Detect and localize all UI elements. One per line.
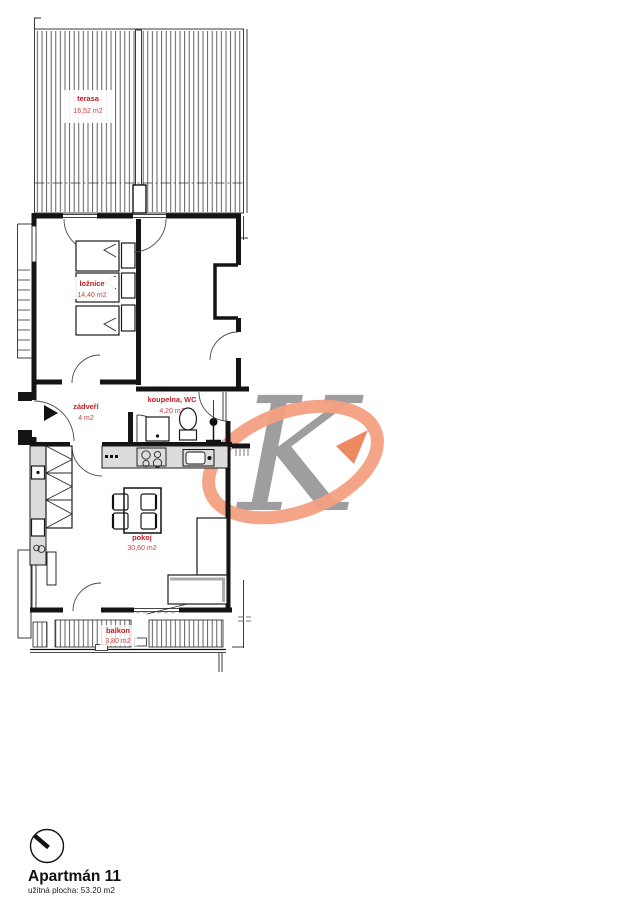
corridor-wall-stub	[18, 392, 32, 401]
room-area-loznice: 14,40 m2	[77, 292, 106, 299]
room-label-terasa: terasa	[77, 94, 100, 103]
chair	[141, 494, 156, 510]
door-arc-hall-to-room	[72, 446, 102, 476]
floorplan-page: K terasa 16,52 m2	[0, 0, 642, 905]
toilet-bowl	[180, 408, 197, 430]
radiator	[47, 552, 56, 585]
room-label-pokoj: pokoj	[132, 533, 152, 542]
room-area-zadveri: 4 m2	[78, 415, 94, 422]
room-area-pokoj: 30,60 m2	[127, 545, 156, 552]
nightstand	[122, 243, 136, 268]
door-arc-neighbor	[210, 332, 238, 360]
toilet-tank	[180, 430, 197, 440]
room-label-koupelna: koupelna, WC	[148, 395, 198, 404]
appliance	[32, 519, 45, 536]
bed	[76, 306, 119, 335]
nightstand	[122, 305, 136, 331]
room-label-loznice: ložnice	[79, 279, 104, 288]
room-label-balkon: balkon	[106, 626, 130, 635]
room-area-terasa: 16,52 m2	[73, 108, 102, 115]
apartment-title: Apartmán 11	[28, 868, 121, 885]
balcony-hatch	[149, 620, 223, 647]
nightstand	[122, 273, 136, 298]
room-koupelna: koupelna, WC 4,20 m2	[146, 395, 221, 441]
room-terasa: terasa 16,52 m2	[35, 18, 248, 213]
cabinet	[197, 518, 227, 575]
room-balkon: balkon 3,80 m2	[30, 620, 226, 672]
usable-area-label: užitná plocha: 53.20 m2	[28, 886, 115, 895]
window-sill-outline	[18, 550, 31, 638]
faucet-icon	[208, 456, 212, 460]
door-arc-bedroom	[72, 355, 100, 383]
footer: Apartmán 11 užitná plocha: 53.20 m2	[28, 830, 121, 896]
floor-drain-icon	[210, 418, 218, 426]
orientation-dial-icon	[31, 830, 64, 863]
chair	[141, 513, 156, 529]
door-arc-balcony	[73, 583, 101, 611]
room-area-balkon: 3,80 m2	[105, 638, 130, 645]
corridor-wall-stub	[18, 430, 32, 445]
room-label-zadveri: zádveří	[73, 402, 99, 411]
exterior-wall-hatch	[18, 270, 31, 350]
chair	[113, 513, 128, 529]
chair	[113, 494, 128, 510]
room-pokoj: pokoj 30,60 m2	[30, 446, 228, 604]
door-arc-entrance	[34, 401, 74, 441]
wall-alcove	[215, 265, 238, 318]
chimney	[133, 185, 146, 213]
balcony-hatch	[33, 622, 47, 647]
kitchen-left-strip	[30, 446, 46, 565]
floorplan-svg: K terasa 16,52 m2	[0, 0, 642, 905]
room-loznice: ložnice 14,40 m2	[69, 241, 135, 335]
